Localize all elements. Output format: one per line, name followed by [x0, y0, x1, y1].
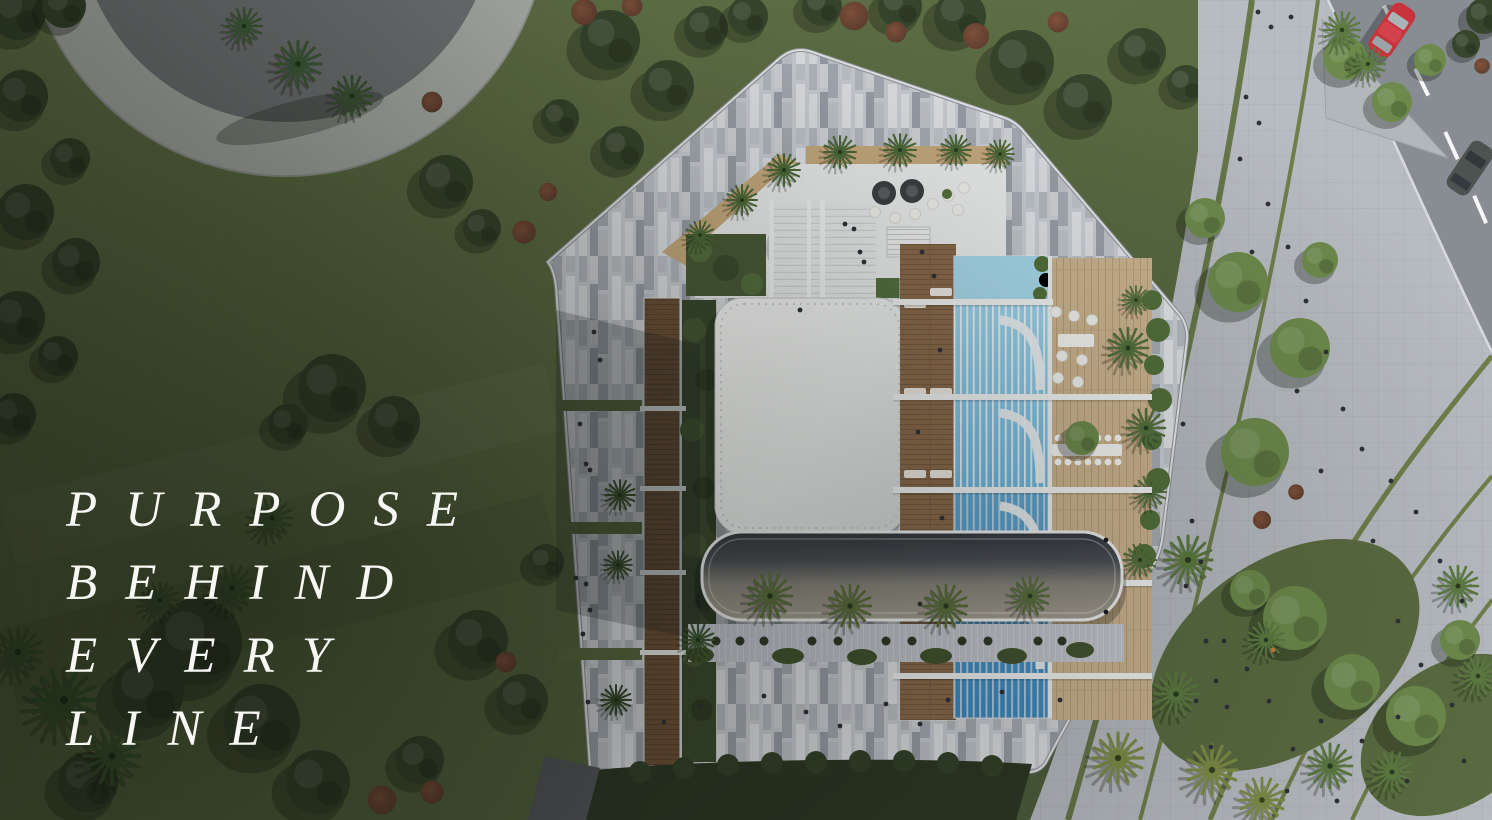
headline: PURPOSE BEHIND EVERY LINE: [66, 474, 486, 766]
headline-line-1: PURPOSE: [66, 474, 486, 547]
aerial-site-render: PURPOSE BEHIND EVERY LINE: [0, 0, 1492, 820]
headline-line-2: BEHIND: [66, 547, 486, 620]
headline-line-4: LINE: [66, 693, 486, 766]
headline-line-3: EVERY: [66, 620, 486, 693]
